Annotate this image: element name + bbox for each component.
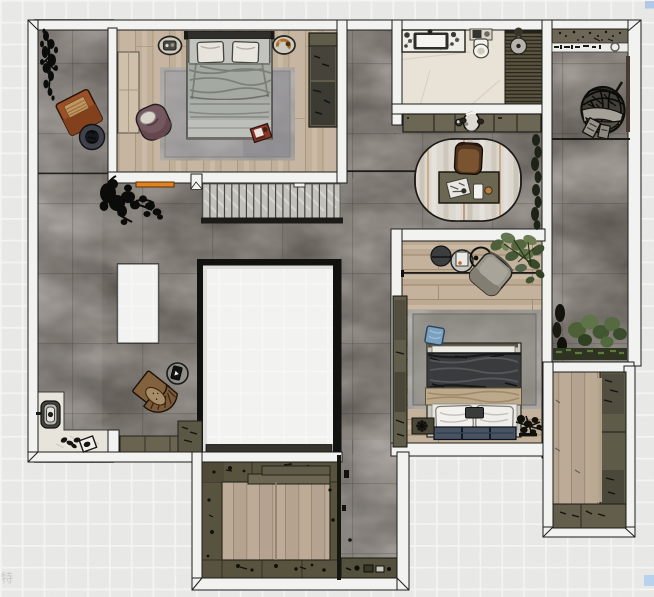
- svg-text:特: 特: [1, 570, 13, 585]
